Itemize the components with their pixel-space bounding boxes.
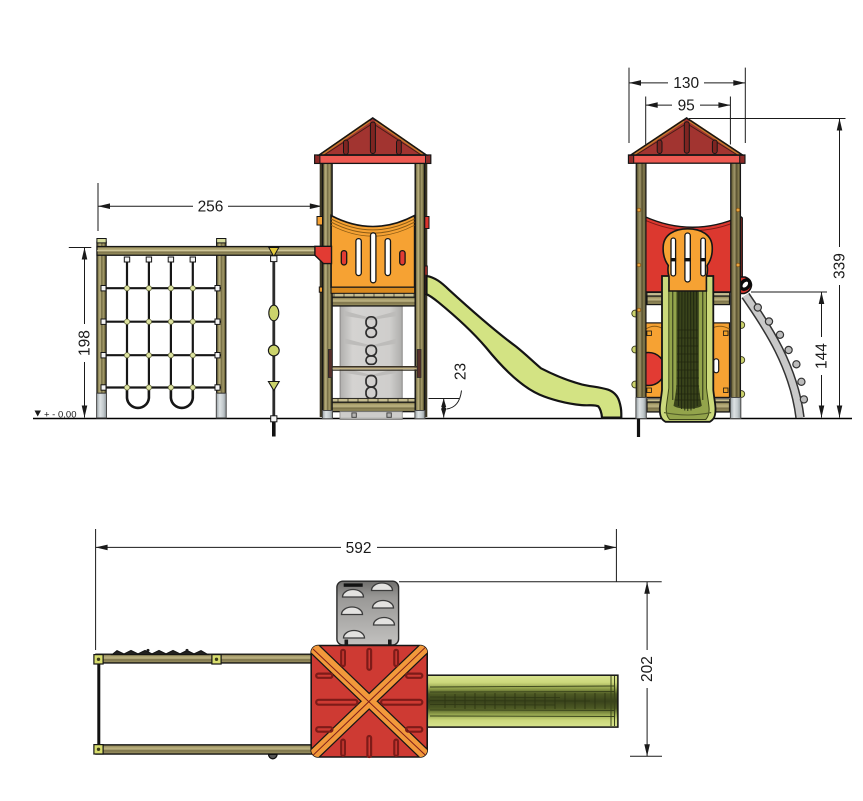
svg-text:144: 144 [814,343,831,369]
svg-text:202: 202 [639,656,656,682]
svg-text:130: 130 [673,75,699,92]
svg-text:95: 95 [678,98,695,115]
svg-text:+ - 0.00: + - 0.00 [44,409,76,420]
svg-text:256: 256 [198,199,224,216]
svg-text:592: 592 [346,540,372,557]
svg-text:23: 23 [453,363,470,380]
svg-text:198: 198 [77,330,94,356]
svg-text:339: 339 [832,253,849,279]
